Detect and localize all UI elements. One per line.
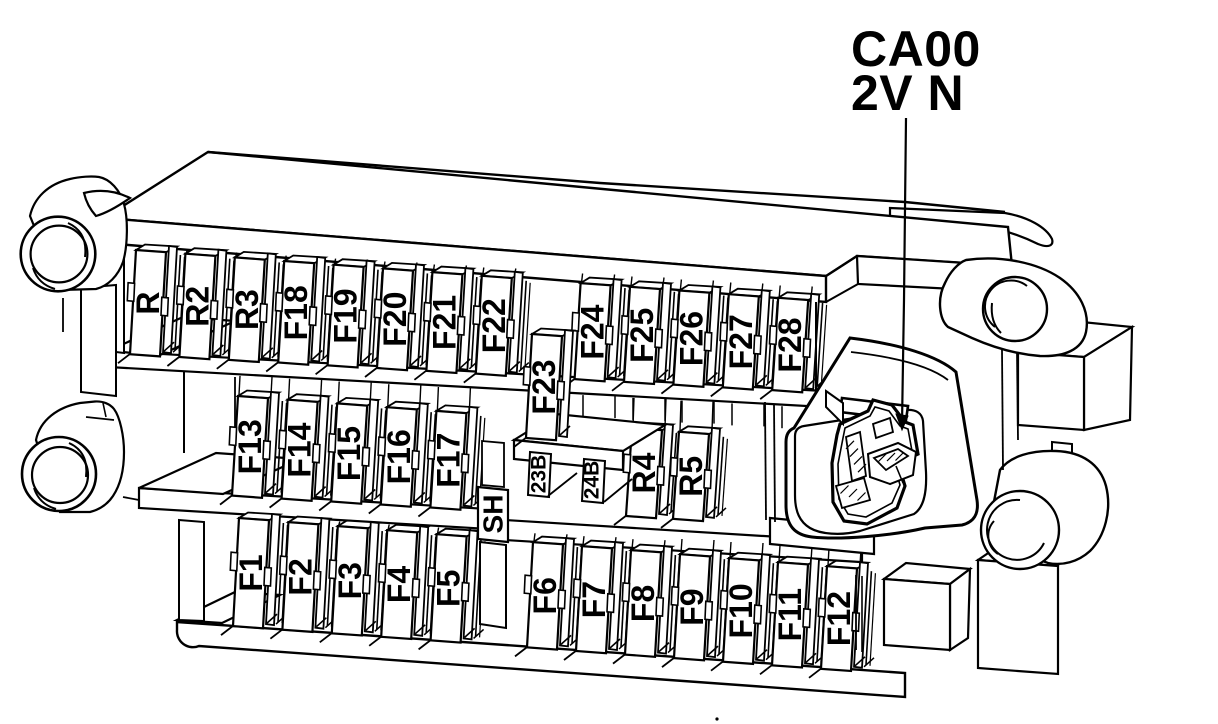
svg-text:F15: F15: [331, 426, 367, 481]
svg-text:F14: F14: [282, 422, 318, 477]
svg-text:24B: 24B: [581, 461, 604, 500]
svg-text:F21: F21: [426, 295, 462, 350]
svg-text:F2: F2: [282, 558, 318, 595]
svg-text:F11: F11: [772, 588, 808, 641]
svg-text:R3: R3: [229, 289, 265, 330]
svg-text:R: R: [130, 292, 166, 315]
svg-text:F12: F12: [821, 591, 857, 646]
svg-text:F22: F22: [476, 298, 512, 353]
svg-text:F17: F17: [430, 433, 466, 488]
svg-text:SH: SH: [478, 495, 509, 534]
svg-text:23B: 23B: [528, 455, 551, 494]
svg-text:R2: R2: [179, 286, 215, 327]
svg-text:2V N: 2V N: [851, 65, 964, 121]
svg-text:F10: F10: [723, 583, 759, 638]
svg-text:F5: F5: [431, 570, 467, 607]
svg-text:F3: F3: [332, 562, 368, 599]
svg-text:R5: R5: [673, 456, 709, 497]
svg-text:F19: F19: [328, 288, 364, 343]
svg-text:R4: R4: [626, 452, 662, 493]
svg-text:F18: F18: [278, 285, 314, 340]
svg-text:F23: F23: [526, 359, 562, 414]
svg-text:F6: F6: [527, 577, 563, 614]
svg-text:F24: F24: [575, 304, 611, 359]
svg-text:F20: F20: [377, 292, 413, 347]
svg-text:F27: F27: [723, 314, 759, 369]
svg-text:F8: F8: [625, 585, 661, 622]
svg-text:F4: F4: [381, 566, 417, 604]
svg-text:F13: F13: [232, 419, 268, 474]
svg-text:F9: F9: [674, 588, 710, 625]
svg-text:F16: F16: [381, 429, 417, 484]
svg-text:F26: F26: [673, 311, 709, 366]
svg-text:F1: F1: [233, 554, 269, 591]
svg-text:F7: F7: [576, 581, 612, 618]
svg-text:F28: F28: [772, 317, 808, 372]
svg-text:F25: F25: [624, 308, 660, 363]
